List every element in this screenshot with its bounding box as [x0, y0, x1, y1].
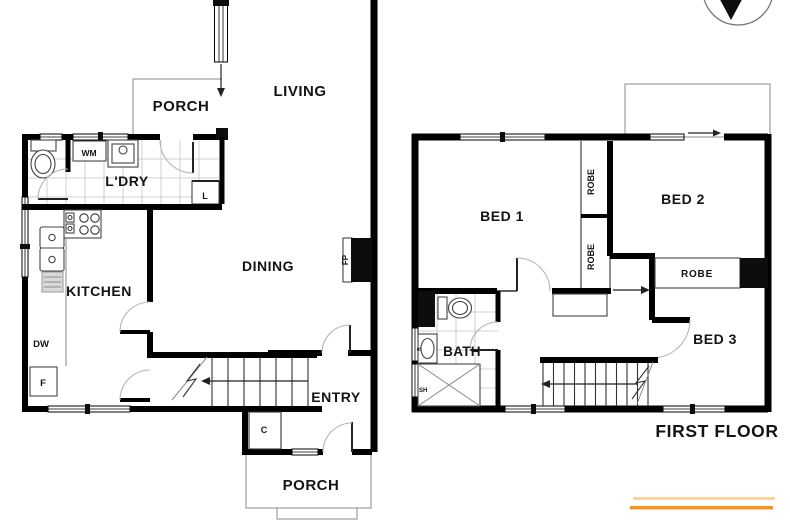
balcony-outline	[625, 84, 770, 134]
label-basin: B	[417, 347, 423, 351]
hall-door-arc	[120, 370, 150, 400]
room-label-bed1: BED 1	[480, 208, 524, 224]
entry-path-arrow	[217, 64, 225, 97]
bed3-door-arc	[652, 320, 690, 358]
label-robe-bed3: ROBE	[681, 269, 713, 280]
balcony-door-arrow	[688, 130, 721, 137]
first-floor-title: FIRST FLOOR	[655, 421, 778, 441]
first-floor-plan: BED 1 BED 2 BED 3 BATH ROBE ROBE ROBE SH…	[412, 84, 779, 441]
hall-arrow	[613, 286, 650, 294]
bed1-wall-door	[418, 258, 611, 291]
first-stairs	[540, 360, 658, 406]
front-door-arc	[323, 422, 352, 452]
floorplan-canvas: PORCH LIVING L'DRY KITCHEN DINING ENTRY …	[0, 0, 790, 527]
room-label-living: LIVING	[273, 83, 326, 100]
label-fireplace: FP	[341, 254, 350, 265]
shower-icon	[418, 364, 480, 406]
top-window-strip	[213, 0, 229, 62]
kitchen-door-arc	[120, 302, 150, 332]
room-label-dining: DINING	[242, 258, 294, 274]
label-shower: SH	[419, 388, 427, 394]
label-cupboard: C	[261, 425, 268, 435]
room-label-porch-top: PORCH	[153, 98, 210, 115]
brand-underline-main	[630, 506, 773, 509]
room-label-porch-bottom: PORCH	[283, 477, 340, 494]
kitchen-sink-icon	[40, 227, 64, 292]
label-washing-machine: WM	[81, 148, 96, 158]
north-compass-icon	[703, 0, 773, 25]
bath-toilet-icon	[438, 297, 472, 319]
label-linen: L	[202, 191, 208, 201]
room-label-bath: BATH	[443, 344, 481, 359]
brand-underline	[630, 497, 775, 509]
label-robe-bed2: ROBE	[586, 244, 596, 270]
laundry-tub-icon	[108, 140, 138, 167]
label-fridge: F	[40, 378, 46, 389]
room-label-entry: ENTRY	[311, 389, 361, 405]
hall-robe-cabinet	[553, 294, 607, 316]
stove-icon	[64, 210, 101, 238]
label-robe-bed1: ROBE	[586, 169, 596, 195]
toilet-icon	[31, 140, 56, 178]
label-dishwasher: DW	[33, 339, 49, 350]
ground-floor-plan: PORCH LIVING L'DRY KITCHEN DINING ENTRY …	[20, 0, 374, 519]
dining-entry-door	[268, 325, 372, 353]
floorplan-drawing: PORCH LIVING L'DRY KITCHEN DINING ENTRY …	[0, 0, 790, 527]
brand-underline-light	[633, 497, 775, 500]
porch-door-arc	[160, 140, 193, 173]
room-label-kitchen: KITCHEN	[66, 283, 132, 299]
room-label-bed3: BED 3	[693, 331, 737, 347]
room-label-laundry: L'DRY	[105, 173, 149, 189]
ground-stairs	[152, 355, 317, 406]
room-label-bed2: BED 2	[661, 191, 705, 207]
